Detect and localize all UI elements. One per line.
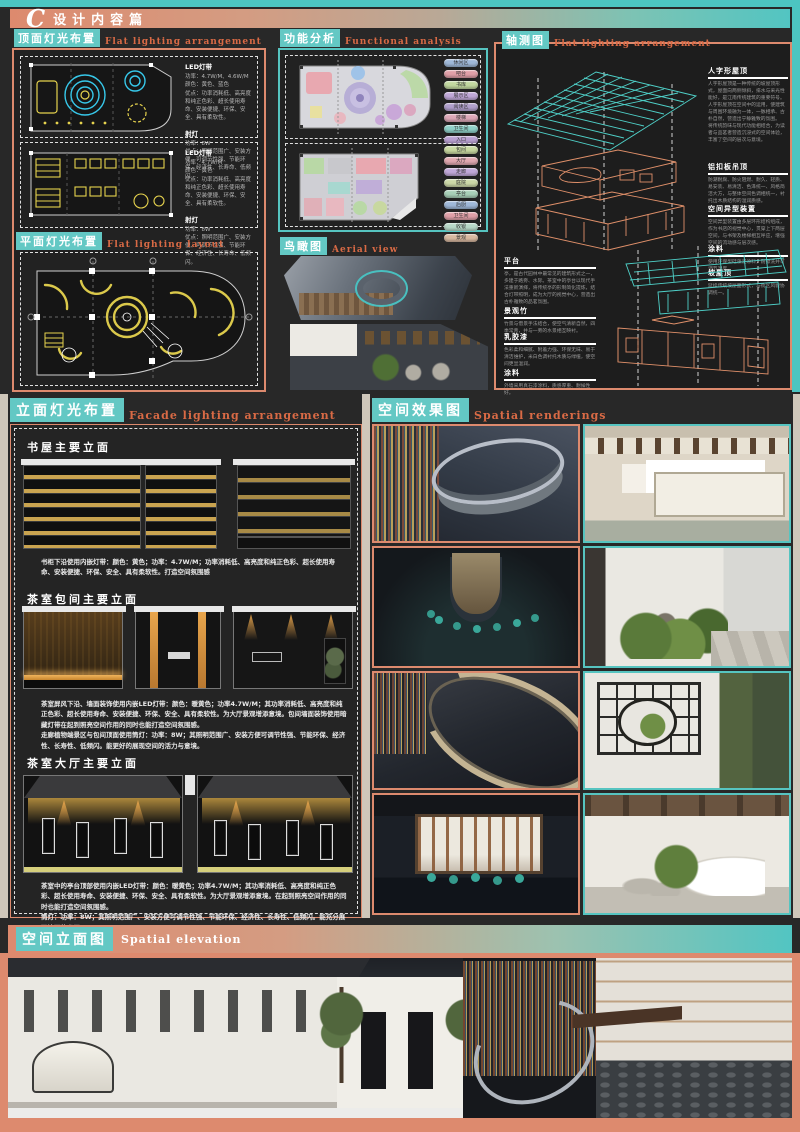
legend-pill: 书库: [444, 81, 478, 89]
legend-pill: 展示区: [444, 92, 478, 100]
hanging-scroll: [248, 824, 261, 860]
round-planter: [32, 1041, 114, 1093]
roof: [24, 776, 182, 798]
rendering-bar-facade: [372, 793, 580, 915]
legend-pill: 卫生间: [444, 125, 478, 133]
tree: [314, 987, 369, 1083]
axon-note-heading: 涂料: [504, 368, 596, 378]
legend-pill: 楼梯: [444, 114, 478, 122]
renderings-title: 空间效果图: [372, 398, 469, 422]
tearoom-elevation-doorway: [135, 611, 221, 689]
tearoom-elevation-wall: [233, 611, 353, 689]
hanging-scroll: [42, 818, 55, 854]
floor-lighting-plan-frame: [20, 252, 258, 386]
functional-plan-1-frame: 休闲区 吧台 书库 展示区 阅读区 楼梯 卫生间 入口: [285, 55, 481, 139]
facade-heading-3: 茶室大厅主要立面: [27, 755, 139, 771]
legend-pill: 吧台: [444, 70, 478, 78]
note-body: 功率：4.7W/M 颜色：黄色 优点：功率消耗低、高亮度和纯正色彩、超长使用寿命…: [185, 159, 255, 209]
lit-pillar: [198, 612, 206, 688]
divider: [504, 317, 596, 319]
elevation-subtitle: Spatial elevation: [121, 933, 241, 946]
floor-strip: [198, 867, 352, 872]
legend-pill: 景观: [444, 234, 478, 242]
axon-note-right-2: 铝扣板吊顶 防潮耐腐、防火阻燃、耐久、轻质、易安装、易清洁、色泽统一、风格简洁大…: [708, 162, 788, 206]
rendering-round-table: [372, 546, 580, 668]
beam: [134, 606, 224, 612]
axon-note-body: 色彩柔和细腻、附着力强、环保无味、易于清洁维护，米白色调衬托木质与绿植，使空间更…: [504, 348, 596, 369]
functional-title: 功能分析: [280, 29, 340, 47]
legend-pill: 阅读区: [444, 103, 478, 111]
floor-strip: [24, 867, 182, 872]
facade-caption-2: 茶室屏风下沿、墙面装饰使用内嵌LED灯带：颜色：暖黄色；功率4.7W/M；其功率…: [41, 699, 347, 751]
teahall-elevation-left: [23, 775, 183, 873]
facade-title: 立面灯光布置: [10, 398, 124, 422]
section-title-functional: 功能分析 Functional analysis: [280, 29, 462, 47]
right-accent-strip-mid: [793, 394, 800, 918]
wall-table: [252, 652, 282, 662]
facade-panel: 书屋主要立面 书柜下沿使用内嵌灯带：颜色：黄色；功率：4.7W/M；功率消耗低、…: [10, 424, 362, 918]
axon-drawing-2: [598, 242, 790, 388]
axon-note-left-3: 乳胶漆 色彩柔和细腻、附着力强、环保无味、易于清洁维护，米白色调衬托木质与绿植，…: [504, 332, 596, 369]
aerial-title: 鸟瞰图: [280, 237, 327, 255]
bookshelf-elevation-left: [23, 465, 141, 549]
axon-title: 轴测图: [502, 31, 549, 49]
aerial-view-2: [290, 324, 488, 390]
axon-note-left-1: 平台 亭，是古代园林中最常见的建筑形式之一，多建于路旁、水际。茶室中的亭台以现代…: [504, 256, 596, 307]
axon-note-body: 防潮耐腐、防火阻燃、耐久、轻质、易安装、易清洁、色泽统一、风格简洁大方，与整体空…: [708, 178, 788, 206]
legend-pill: 收银: [444, 223, 478, 231]
scroll-wall: [24, 990, 322, 1032]
ceiling-plan-1-frame: LED灯带 功率：4.7W/M、4.6W/M 颜色：黄色、蓝色 优点：功率消耗低…: [20, 56, 258, 138]
rendering-library-spiral: [372, 424, 580, 543]
note-body: 功率：4.7W/M、4.6W/M 颜色：黄色、蓝色 优点：功率消耗低、高亮度和纯…: [185, 73, 255, 123]
axon-note-heading: 平台: [504, 256, 596, 266]
axon-note-body: 人字形屋顶是一种传统的坡屋顶形式，屋面向两侧倾斜，排水与采光性能好，是江南传统建…: [708, 82, 788, 145]
note-heading: LED灯带: [185, 61, 255, 71]
axon-note-body: 外墙采用真石漆涂料，质感厚重、耐候性好。: [504, 384, 596, 398]
beam: [232, 606, 356, 612]
design-poster: C 设计内容篇 顶面灯光布置 Flat lighting arrangement: [0, 0, 800, 1132]
divider: [504, 379, 596, 381]
legend-pill: 卫生间: [444, 212, 478, 220]
legend-pill: 庭院: [444, 179, 478, 187]
functional-plan-2-frame: 包间 大厅 走廊 庭院 亭台 后厨 卫生间 收银 景观: [285, 143, 481, 227]
functional-legend-1: 休闲区 吧台 书库 展示区 阅读区 楼梯 卫生间 入口: [444, 59, 478, 144]
plant-feature: [324, 638, 346, 684]
ceiling-plan-2-drawing: [23, 147, 179, 223]
right-accent-strip-top: [792, 7, 800, 392]
flat-lighting-title: 平面灯光布置: [16, 232, 102, 250]
legend-pill: 休闲区: [444, 59, 478, 67]
top-lighting-panel: LED灯带 功率：4.7W/M、4.6W/M 颜色：黄色、蓝色 优点：功率消耗低…: [12, 48, 266, 392]
divider: [504, 343, 596, 345]
cobble-path: [596, 1060, 792, 1118]
mid-accent-strip: [362, 394, 370, 918]
dark-door: [408, 1012, 433, 1089]
aerial-subtitle: Aerial view: [332, 245, 398, 255]
section-title-facade: 立面灯光布置 Facade lighting arrangement: [10, 398, 336, 422]
elevation-banner: 空间立面图 Spatial elevation: [8, 925, 792, 953]
axon-note-body: 亭，是古代园林中最常见的建筑形式之一，多建于路旁、水际。茶室中的亭台以现代手法重…: [504, 272, 596, 307]
axon-subtitle: Flat lighting arrangement: [554, 39, 711, 49]
axon-note-heading: 铝扣板吊顶: [708, 162, 788, 172]
hanging-scroll: [114, 818, 127, 854]
legend-pill: 大厅: [444, 157, 478, 165]
page-title: 设计内容篇: [53, 9, 148, 28]
divider: [708, 173, 788, 175]
flat-lighting-subtitle: Flat lighting layout: [107, 240, 224, 250]
functional-plan-1-drawing: [288, 58, 438, 136]
bookshelf-elevation-mid: [145, 465, 217, 549]
spotlight-cone: [242, 614, 260, 640]
beam: [22, 606, 126, 612]
rendering-zen-garden: [583, 546, 791, 668]
bookshelf-elevation-right: [237, 465, 351, 537]
base: [24, 680, 122, 688]
console-table: [168, 652, 190, 659]
axon-note-heading: 空间异型装置: [708, 204, 788, 214]
left-accent-strip: [0, 394, 8, 918]
note-heading: 射灯: [185, 214, 255, 224]
hanging-scroll: [320, 824, 333, 860]
legend-pill: 包间: [444, 146, 478, 154]
facade-heading-2: 茶室包间主要立面: [27, 591, 139, 607]
bookshelf-base: [237, 537, 351, 549]
rendering-tea-counter: [583, 424, 791, 543]
hanging-scroll: [286, 820, 299, 856]
ceiling-plan-2-frame: LED灯带 功率：4.7W/M 颜色：黄色 优点：功率消耗低、高亮度和纯正色彩、…: [20, 142, 258, 228]
axon-drawing-1: [500, 58, 704, 254]
hanging-scroll: [76, 822, 89, 858]
spotlight-cone: [282, 614, 300, 640]
teahall-elevation-right: [197, 775, 353, 873]
axonometric-panel: 轴测图 Flat lighting arrangement: [494, 42, 792, 390]
elevation-frame: [0, 953, 800, 1132]
divider: [708, 77, 788, 79]
rendering-corridor-window: [583, 671, 791, 790]
rendering-spiral-stair: [372, 671, 580, 790]
functional-legend-2: 包间 大厅 走廊 庭院 亭台 后厨 卫生间 收银 景观: [444, 146, 478, 242]
facade-heading-1: 书屋主要立面: [27, 439, 111, 455]
top-accent-strip: [0, 0, 800, 7]
functional-plan-2-drawing: [288, 146, 438, 224]
lit-pillar: [150, 612, 158, 688]
floor-lighting-plan-drawing: [23, 255, 255, 383]
functional-panel: 休闲区 吧台 书库 展示区 阅读区 楼梯 卫生间 入口: [278, 48, 488, 232]
facade-caption-1: 书柜下沿使用内嵌灯带：颜色：黄色；功率：4.7W/M；功率消耗低、高亮度和纯正色…: [41, 557, 341, 578]
spotlight-cone: [322, 614, 340, 640]
note-heading: 射灯: [185, 128, 255, 138]
section-title-aerial: 鸟瞰图 Aerial view: [280, 237, 398, 255]
tearoom-elevation-screen: [23, 611, 123, 689]
column: [185, 775, 195, 795]
note-heading: LED灯带: [185, 147, 255, 157]
facade-subtitle: Facade lighting arrangement: [129, 409, 336, 422]
section-title-axon: 轴测图 Flat lighting arrangement: [502, 31, 711, 49]
elevation-rendering: [8, 958, 792, 1118]
axon-note-heading: 乳胶漆: [504, 332, 596, 342]
top-lighting-subtitle: Flat lighting arrangement: [105, 37, 262, 47]
legend-pill: 走廊: [444, 168, 478, 176]
hanging-scroll: [214, 820, 227, 856]
axon-note-heading: 景观竹: [504, 306, 596, 316]
legend-pill: 亭台: [444, 190, 478, 198]
roof: [198, 776, 352, 798]
axon-note-right-1: 人字形屋顶 人字形屋顶是一种传统的坡屋顶形式，屋面向两侧倾斜，排水与采光性能好，…: [708, 66, 788, 145]
axon-note-heading: 人字形屋顶: [708, 66, 788, 76]
axon-note-left-4: 涂料 外墙采用真石漆涂料，质感厚重、耐候性好。: [504, 368, 596, 398]
section-title-renderings: 空间效果图 Spatial renderings: [372, 398, 607, 422]
section-title-top-lighting: 顶面灯光布置 Flat lighting arrangement: [14, 29, 262, 47]
ceiling-plan-1-drawing: [23, 59, 179, 135]
section-letter: C: [26, 11, 45, 27]
aerial-view-1: [284, 256, 472, 320]
section-title-flat-lighting: 平面灯光布置 Flat lighting layout: [16, 232, 224, 250]
elevation-title: 空间立面图: [16, 927, 113, 951]
functional-subtitle: Functional analysis: [345, 37, 462, 47]
hanging-scroll: [150, 822, 163, 858]
rendering-stepping-stones: [583, 793, 791, 915]
top-lighting-title: 顶面灯光布置: [14, 29, 100, 47]
divider: [708, 215, 788, 217]
divider: [504, 267, 596, 269]
page-header: C 设计内容篇: [10, 9, 790, 28]
legend-pill: 后厨: [444, 201, 478, 209]
renderings-subtitle: Spatial renderings: [474, 409, 607, 422]
